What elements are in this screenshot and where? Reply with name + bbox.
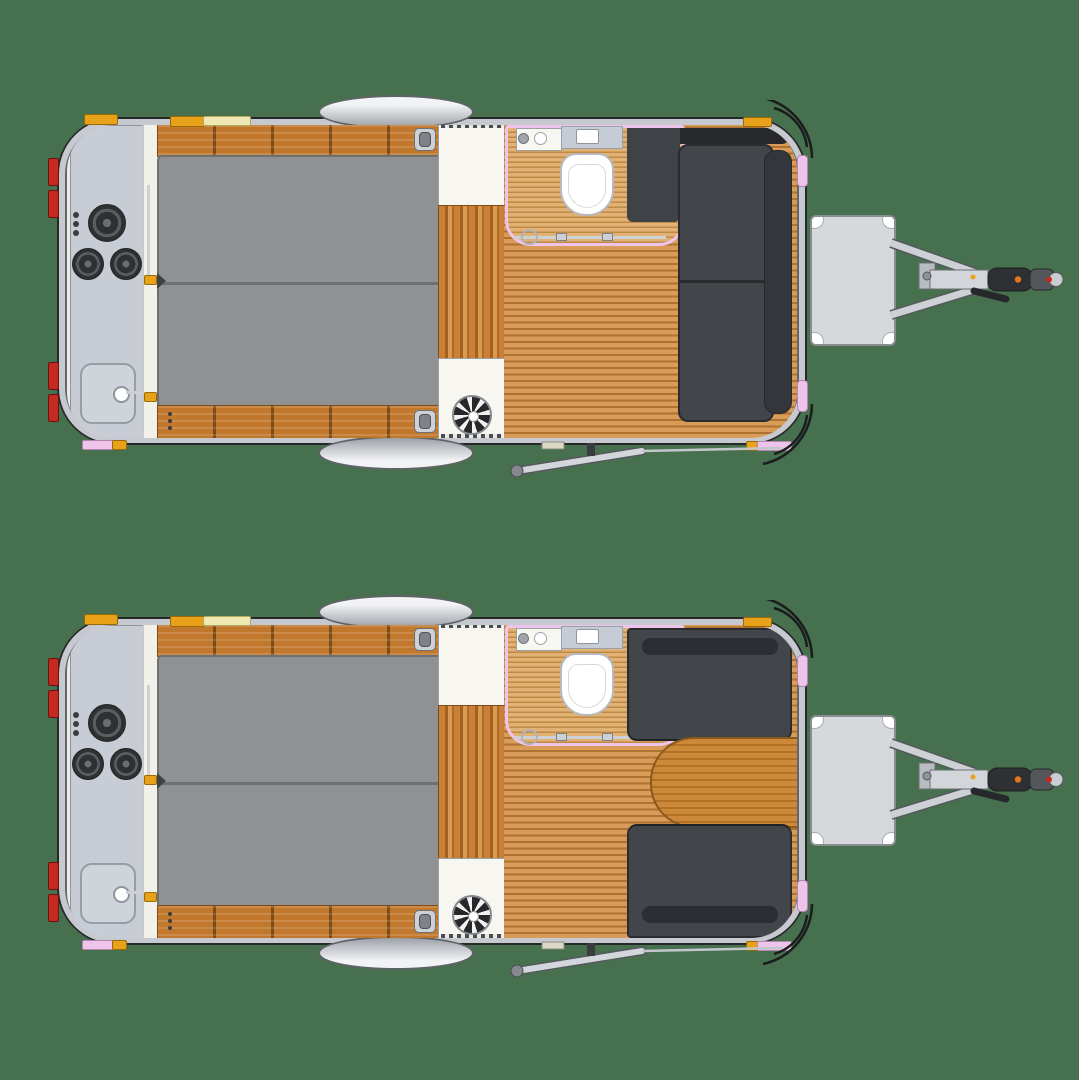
tail-light [48, 394, 59, 422]
coupler-indicator [1046, 277, 1052, 283]
cooktop-burner-large [88, 204, 126, 242]
corner-trim-pink [797, 655, 808, 687]
vent-fan-icon [452, 395, 492, 435]
fan-hub [468, 411, 479, 422]
marker-light-clear [203, 116, 251, 126]
partition-rail [147, 185, 150, 285]
latch-grip [419, 914, 431, 929]
latch-grip [419, 414, 431, 429]
vent-dot [168, 912, 172, 916]
wheel-fender-offside [318, 595, 474, 629]
box-corner-cap [810, 215, 824, 229]
box-corner-cap [882, 715, 896, 729]
jockey-clamp [919, 763, 935, 789]
vent-fan-icon [452, 895, 492, 935]
wardrobe [438, 205, 506, 360]
marker-light-pink [82, 440, 114, 450]
corner-trim-pink [797, 880, 808, 912]
partition-rail [147, 685, 150, 785]
overhead-locker-row-top [157, 124, 440, 157]
locker-latch-bottom [414, 910, 436, 933]
faucet-icon [113, 886, 130, 903]
vanity-bowl [534, 132, 547, 145]
door-roller [556, 733, 567, 741]
tow-ball-icon [1049, 273, 1063, 287]
safety-pin-icon [971, 775, 976, 780]
marker-light-pink [82, 940, 114, 950]
entry-step-outline [517, 451, 642, 471]
jockey-clamp [919, 263, 935, 289]
tail-light [48, 690, 59, 718]
drawbar-arm-upper-face [891, 243, 976, 273]
cooktop-knob [73, 212, 79, 218]
vent-dot [168, 926, 172, 930]
sofa-front-backrest [764, 150, 792, 414]
marker-light-amber [84, 114, 118, 125]
cooktop-knob [73, 730, 79, 736]
locker-latch-top [414, 128, 436, 151]
ball-housing [1030, 769, 1054, 790]
cooktop-burner-small-right [110, 748, 142, 780]
vent-dot [168, 426, 172, 430]
bench-top-backrest [642, 638, 778, 655]
coupler-pin-icon [1015, 276, 1021, 282]
coupler-head [988, 268, 1032, 291]
latch-grip [419, 632, 431, 647]
box-corner-cap [810, 332, 824, 346]
latch-grip [419, 132, 431, 147]
drawbar-storage-box [810, 215, 896, 346]
ball-housing [1030, 269, 1054, 290]
vanity-bowl [534, 632, 547, 645]
wheel-fender-nearside [318, 936, 474, 970]
corner-trim-pink [797, 380, 808, 412]
cooktop-burner-small-left [72, 748, 104, 780]
door-roller [602, 733, 613, 741]
faucet-icon [113, 386, 130, 403]
vent-dot [168, 419, 172, 423]
drawbar-arm-lower [891, 789, 976, 815]
box-corner-cap [882, 832, 896, 846]
box-corner-cap [882, 215, 896, 229]
wardrobe [438, 705, 506, 860]
faucet-spout [126, 391, 143, 394]
marker-light-amber [84, 614, 118, 625]
marker-light-amber [112, 440, 127, 450]
box-corner-cap [810, 832, 824, 846]
toilet [560, 653, 614, 716]
drawbar-arm-upper [891, 243, 976, 273]
wheel-fender-offside [318, 95, 474, 129]
entry-step [517, 451, 642, 471]
marker-light-pink [757, 441, 792, 451]
double-bed [157, 155, 442, 409]
cooktop-knob [73, 221, 79, 227]
tail-light [48, 658, 59, 686]
bathroom-basin [576, 629, 599, 644]
tail-light [48, 362, 59, 390]
marker-light-amber [170, 616, 205, 627]
door-roller [602, 233, 613, 241]
entry-step-outline [517, 951, 642, 971]
tail-light [48, 894, 59, 922]
bed-split-line [159, 782, 440, 785]
step-foot [511, 465, 523, 477]
jockey-wheel-icon [923, 272, 931, 280]
coupler-channel [930, 770, 988, 789]
corner-trim-pink [797, 155, 808, 187]
drawbar-arm-lower-face [891, 789, 976, 815]
coupler-head [988, 768, 1032, 791]
tail-light [48, 158, 59, 186]
double-bed [157, 655, 442, 909]
fan-hub [468, 911, 479, 922]
step-foot [511, 965, 523, 977]
bench-bottom-backrest [642, 906, 778, 923]
drawbar-arm-lower-face [891, 289, 976, 315]
cooktop-knob [73, 721, 79, 727]
cooktop-burner-small-right [110, 248, 142, 280]
vanity-faucet-icon [518, 133, 529, 144]
cushion-split [680, 280, 772, 283]
faucet-spout [126, 891, 143, 894]
partition-fitting [144, 892, 157, 902]
vanity-faucet-icon [518, 633, 529, 644]
partition-fitting [144, 275, 157, 285]
bed-notch [157, 273, 166, 289]
drawbar-arm-upper [891, 743, 976, 773]
box-corner-cap [810, 715, 824, 729]
vent-dot [168, 919, 172, 923]
entry-step [517, 951, 642, 971]
bed-split-line [159, 282, 440, 285]
tail-light [48, 190, 59, 218]
toilet-bowl [568, 164, 606, 208]
coupler-pin-icon [1015, 776, 1021, 782]
overhead-locker-row-bottom [157, 905, 440, 940]
jockey-wheel-icon [923, 772, 931, 780]
box-corner-cap [882, 332, 896, 346]
overhead-locker-row-bottom [157, 405, 440, 440]
marker-light-amber [743, 617, 772, 627]
coupler-channel [930, 270, 988, 289]
cooktop-knob [73, 712, 79, 718]
marker-light-amber [112, 940, 127, 950]
marker-light-pink [757, 941, 792, 951]
upper-cabinet [438, 622, 506, 707]
partition-fitting [144, 392, 157, 402]
drawbar-arm-lower [891, 289, 976, 315]
cooktop-knob [73, 230, 79, 236]
handbrake-lever [974, 791, 1006, 799]
toilet [560, 153, 614, 216]
door-roller [556, 233, 567, 241]
tail-light [48, 862, 59, 890]
floor-plan-dinette-layout [0, 600, 1079, 1000]
bathroom-basin [576, 129, 599, 144]
bathroom-door-handle [521, 229, 538, 245]
tow-ball-icon [1049, 773, 1063, 787]
handbrake-lever [974, 291, 1006, 299]
upper-cabinet [438, 122, 506, 207]
floor-plan-sofa-layout [0, 100, 1079, 500]
bathroom-door-handle [521, 729, 538, 745]
marker-light-clear [203, 616, 251, 626]
locker-latch-top [414, 628, 436, 651]
safety-pin-icon [971, 275, 976, 280]
toilet-bowl [568, 664, 606, 708]
wheel-fender-nearside [318, 436, 474, 470]
vent-dot [168, 412, 172, 416]
marker-light-amber [170, 116, 205, 127]
drawbar-storage-box [810, 715, 896, 846]
marker-light-amber [743, 117, 772, 127]
sofa-seat-cushions [678, 144, 774, 422]
cooktop-burner-small-left [72, 248, 104, 280]
cooktop-burner-large [88, 704, 126, 742]
drawbar-arm-upper-face [891, 743, 976, 773]
overhead-locker-row-top [157, 624, 440, 657]
partition-fitting [144, 775, 157, 785]
coupler-indicator [1046, 777, 1052, 783]
sofa-corner-seat [627, 128, 680, 222]
bed-notch [157, 773, 166, 789]
locker-latch-bottom [414, 410, 436, 433]
dining-table [650, 737, 799, 828]
